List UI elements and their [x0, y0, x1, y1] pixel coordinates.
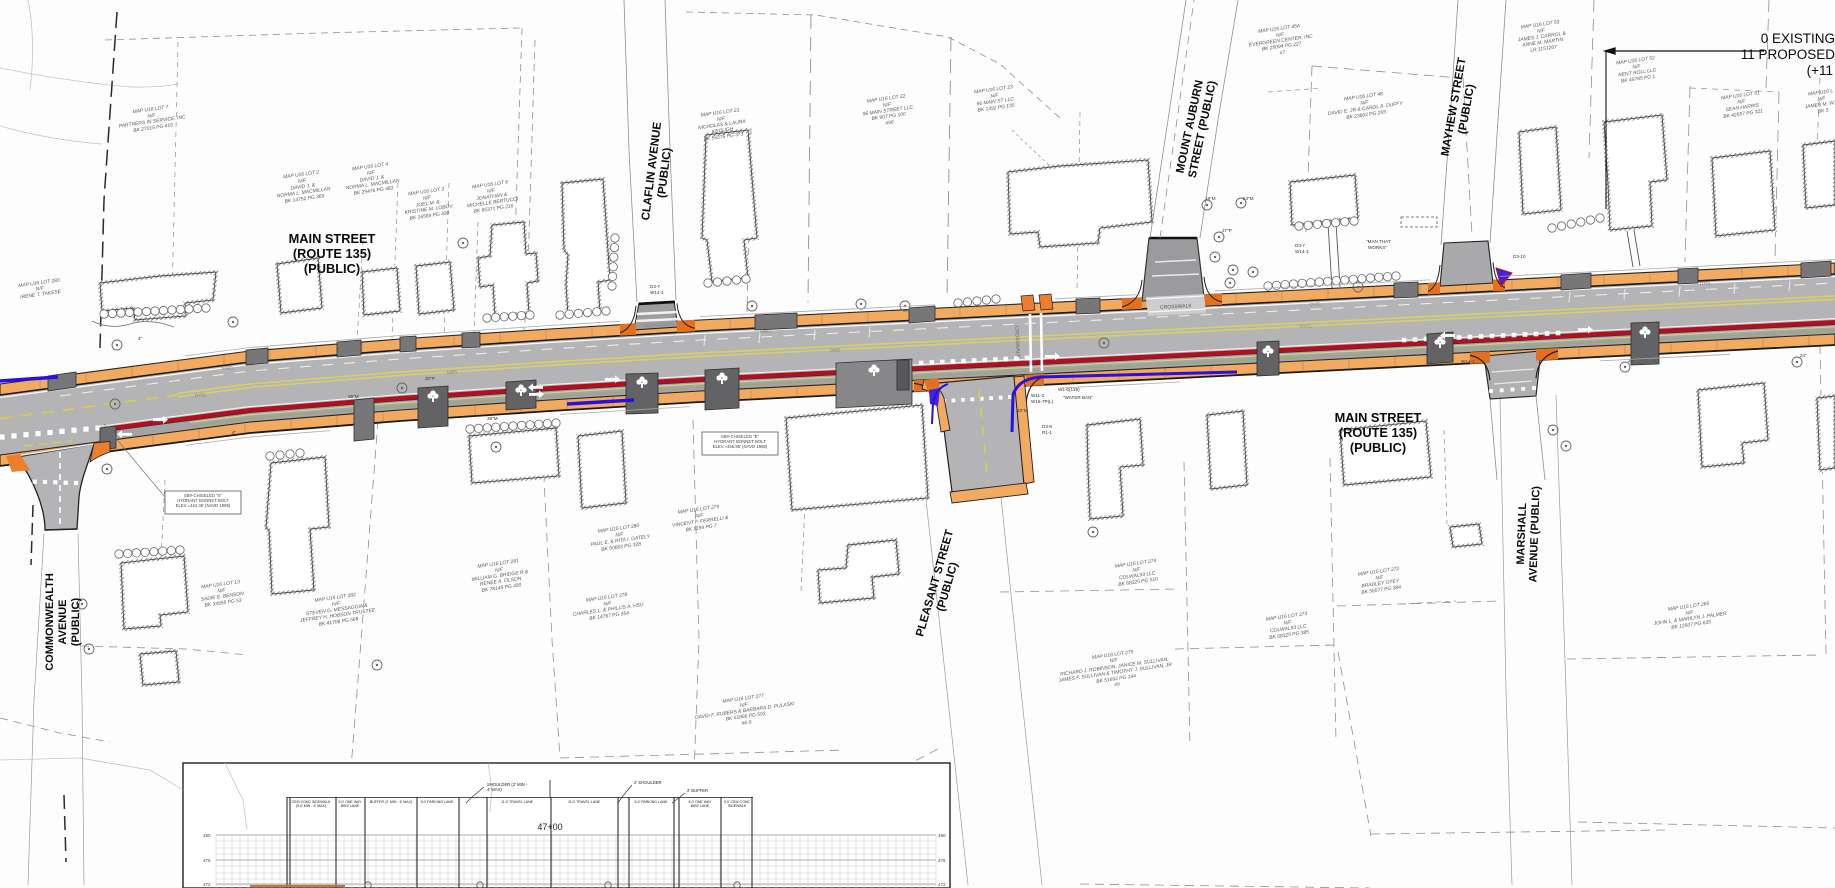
svg-text:SIDEWALK: SIDEWALK	[728, 804, 747, 808]
svg-text:472: 472	[938, 882, 946, 887]
svg-text:ELEV.=444.36' (NAVD 1988): ELEV.=444.36' (NAVD 1988)	[176, 503, 231, 508]
svg-text:W14-1: W14-1	[1295, 249, 1309, 254]
svg-text:480: 480	[203, 833, 211, 838]
svg-text:COMMONWEALTH: COMMONWEALTH	[44, 573, 56, 671]
svg-text:5.0' PARKING LANE: 5.0' PARKING LANE	[635, 800, 668, 804]
svg-text:BIKE LANE: BIKE LANE	[691, 804, 710, 808]
svg-text:DYCL: DYCL	[1300, 323, 1313, 329]
svg-text:5.0' ONE WAY: 5.0' ONE WAY	[338, 800, 362, 804]
svg-text:D3-7: D3-7	[1295, 243, 1305, 248]
svg-text:(PUBLIC): (PUBLIC)	[304, 261, 360, 276]
svg-text:CEM CONC SIDEWALK: CEM CONC SIDEWALK	[292, 800, 331, 804]
svg-text:DYCL: DYCL	[195, 392, 208, 398]
svg-text:(+11: (+11	[1807, 63, 1833, 78]
svg-text:D3-7: D3-7	[650, 284, 660, 289]
svg-text:11.0' TRAVEL LANE: 11.0' TRAVEL LANE	[568, 800, 601, 804]
svg-text:DYEL: DYEL	[1700, 280, 1712, 286]
svg-text:BUFFER (2' MIN - 6' MAX): BUFFER (2' MIN - 6' MAX)	[370, 800, 412, 804]
svg-text:24"M: 24"M	[1243, 196, 1254, 201]
svg-text:5.0' CEM CONC: 5.0' CEM CONC	[724, 800, 750, 804]
svg-text:11.0' TRAVEL LANE: 11.0' TRAVEL LANE	[501, 800, 534, 804]
svg-text:476: 476	[938, 858, 946, 863]
svg-text:W14-1: W14-1	[1461, 359, 1475, 364]
svg-text:W11-2: W11-2	[1031, 393, 1045, 398]
svg-text:47+00: 47+00	[537, 822, 562, 832]
svg-text:W16-7P(L): W16-7P(L)	[1031, 399, 1054, 404]
svg-text:#7: #7	[1279, 50, 1286, 57]
svg-text:2' BUFFER: 2' BUFFER	[687, 788, 708, 793]
svg-text:MAIN STREET: MAIN STREET	[289, 231, 376, 246]
svg-text:24": 24"	[1800, 353, 1807, 358]
svg-text:2' SHOULDER: 2' SHOULDER	[634, 780, 662, 785]
svg-text:(PUBLIC): (PUBLIC)	[70, 598, 82, 647]
svg-text:33"M: 33"M	[1017, 408, 1028, 413]
svg-text:WORKS": WORKS"	[1368, 245, 1387, 250]
svg-text:D3-10: D3-10	[1513, 254, 1526, 259]
svg-text:38"M: 38"M	[487, 416, 498, 421]
svg-text:(5.0' MIN - 6' MAX): (5.0' MIN - 6' MAX)	[296, 804, 326, 808]
svg-text:24": 24"	[1628, 358, 1635, 363]
svg-text:5.0' ONE WAY: 5.0' ONE WAY	[688, 800, 712, 804]
svg-text:AVENUE: AVENUE	[57, 599, 69, 644]
svg-text:HYDRANT BONNET BOLT: HYDRANT BONNET BOLT	[177, 498, 229, 503]
svg-text:(PUBLIC): (PUBLIC)	[1350, 440, 1406, 455]
svg-text:SWEL: SWEL	[222, 365, 235, 371]
svg-text:480: 480	[938, 833, 946, 838]
svg-text:"WATER BAN": "WATER BAN"	[1063, 395, 1093, 400]
svg-text:SB#-CHISELED "X": SB#-CHISELED "X"	[184, 493, 223, 498]
svg-text:SB#-CHISELED "E": SB#-CHISELED "E"	[721, 434, 760, 439]
svg-text:18"M: 18"M	[1205, 196, 1216, 201]
svg-text:0 EXISTING: 0 EXISTING	[1761, 31, 1835, 46]
svg-text:4": 4"	[138, 336, 143, 341]
svg-text:(ROUTE 135): (ROUTE 135)	[293, 246, 371, 261]
svg-text:DWS: DWS	[447, 369, 458, 375]
svg-text:SWEL: SWEL	[760, 328, 773, 334]
svg-text:DWS: DWS	[830, 347, 841, 353]
svg-text:BIKE LANE: BIKE LANE	[341, 804, 360, 808]
svg-text:4' MAX): 4' MAX)	[487, 787, 502, 792]
svg-text:11 PROPOSED: 11 PROPOSED	[1741, 47, 1835, 62]
svg-text:4": 4"	[232, 430, 237, 435]
svg-text:DYEL: DYEL	[1310, 301, 1322, 307]
svg-text:ELEV.=456.85' (NAVD 1988): ELEV.=456.85' (NAVD 1988)	[713, 444, 768, 449]
svg-text:27"P: 27"P	[1222, 228, 1232, 233]
svg-text:W14-1: W14-1	[650, 290, 664, 295]
svg-text:36"M: 36"M	[348, 394, 359, 399]
svg-text:(ROUTE 135): (ROUTE 135)	[1339, 425, 1417, 440]
svg-text:D3-8: D3-8	[1042, 424, 1052, 429]
svg-text:R1-1: R1-1	[1042, 430, 1052, 435]
svg-text:#96: #96	[885, 119, 894, 126]
svg-text:"MAN THAT: "MAN THAT	[1366, 239, 1391, 244]
svg-text:MARSHALL: MARSHALL	[1515, 502, 1529, 564]
svg-text:30"P: 30"P	[425, 376, 435, 381]
svg-text:HYDRANT BONNET BOLT: HYDRANT BONNET BOLT	[714, 439, 766, 444]
svg-text:472: 472	[203, 882, 211, 887]
svg-text:#9: #9	[1114, 682, 1121, 689]
svg-text:MAIN STREET: MAIN STREET	[1335, 410, 1422, 425]
svg-text:5.0' PARKING LANE: 5.0' PARKING LANE	[421, 800, 454, 804]
svg-text:476: 476	[203, 858, 211, 863]
